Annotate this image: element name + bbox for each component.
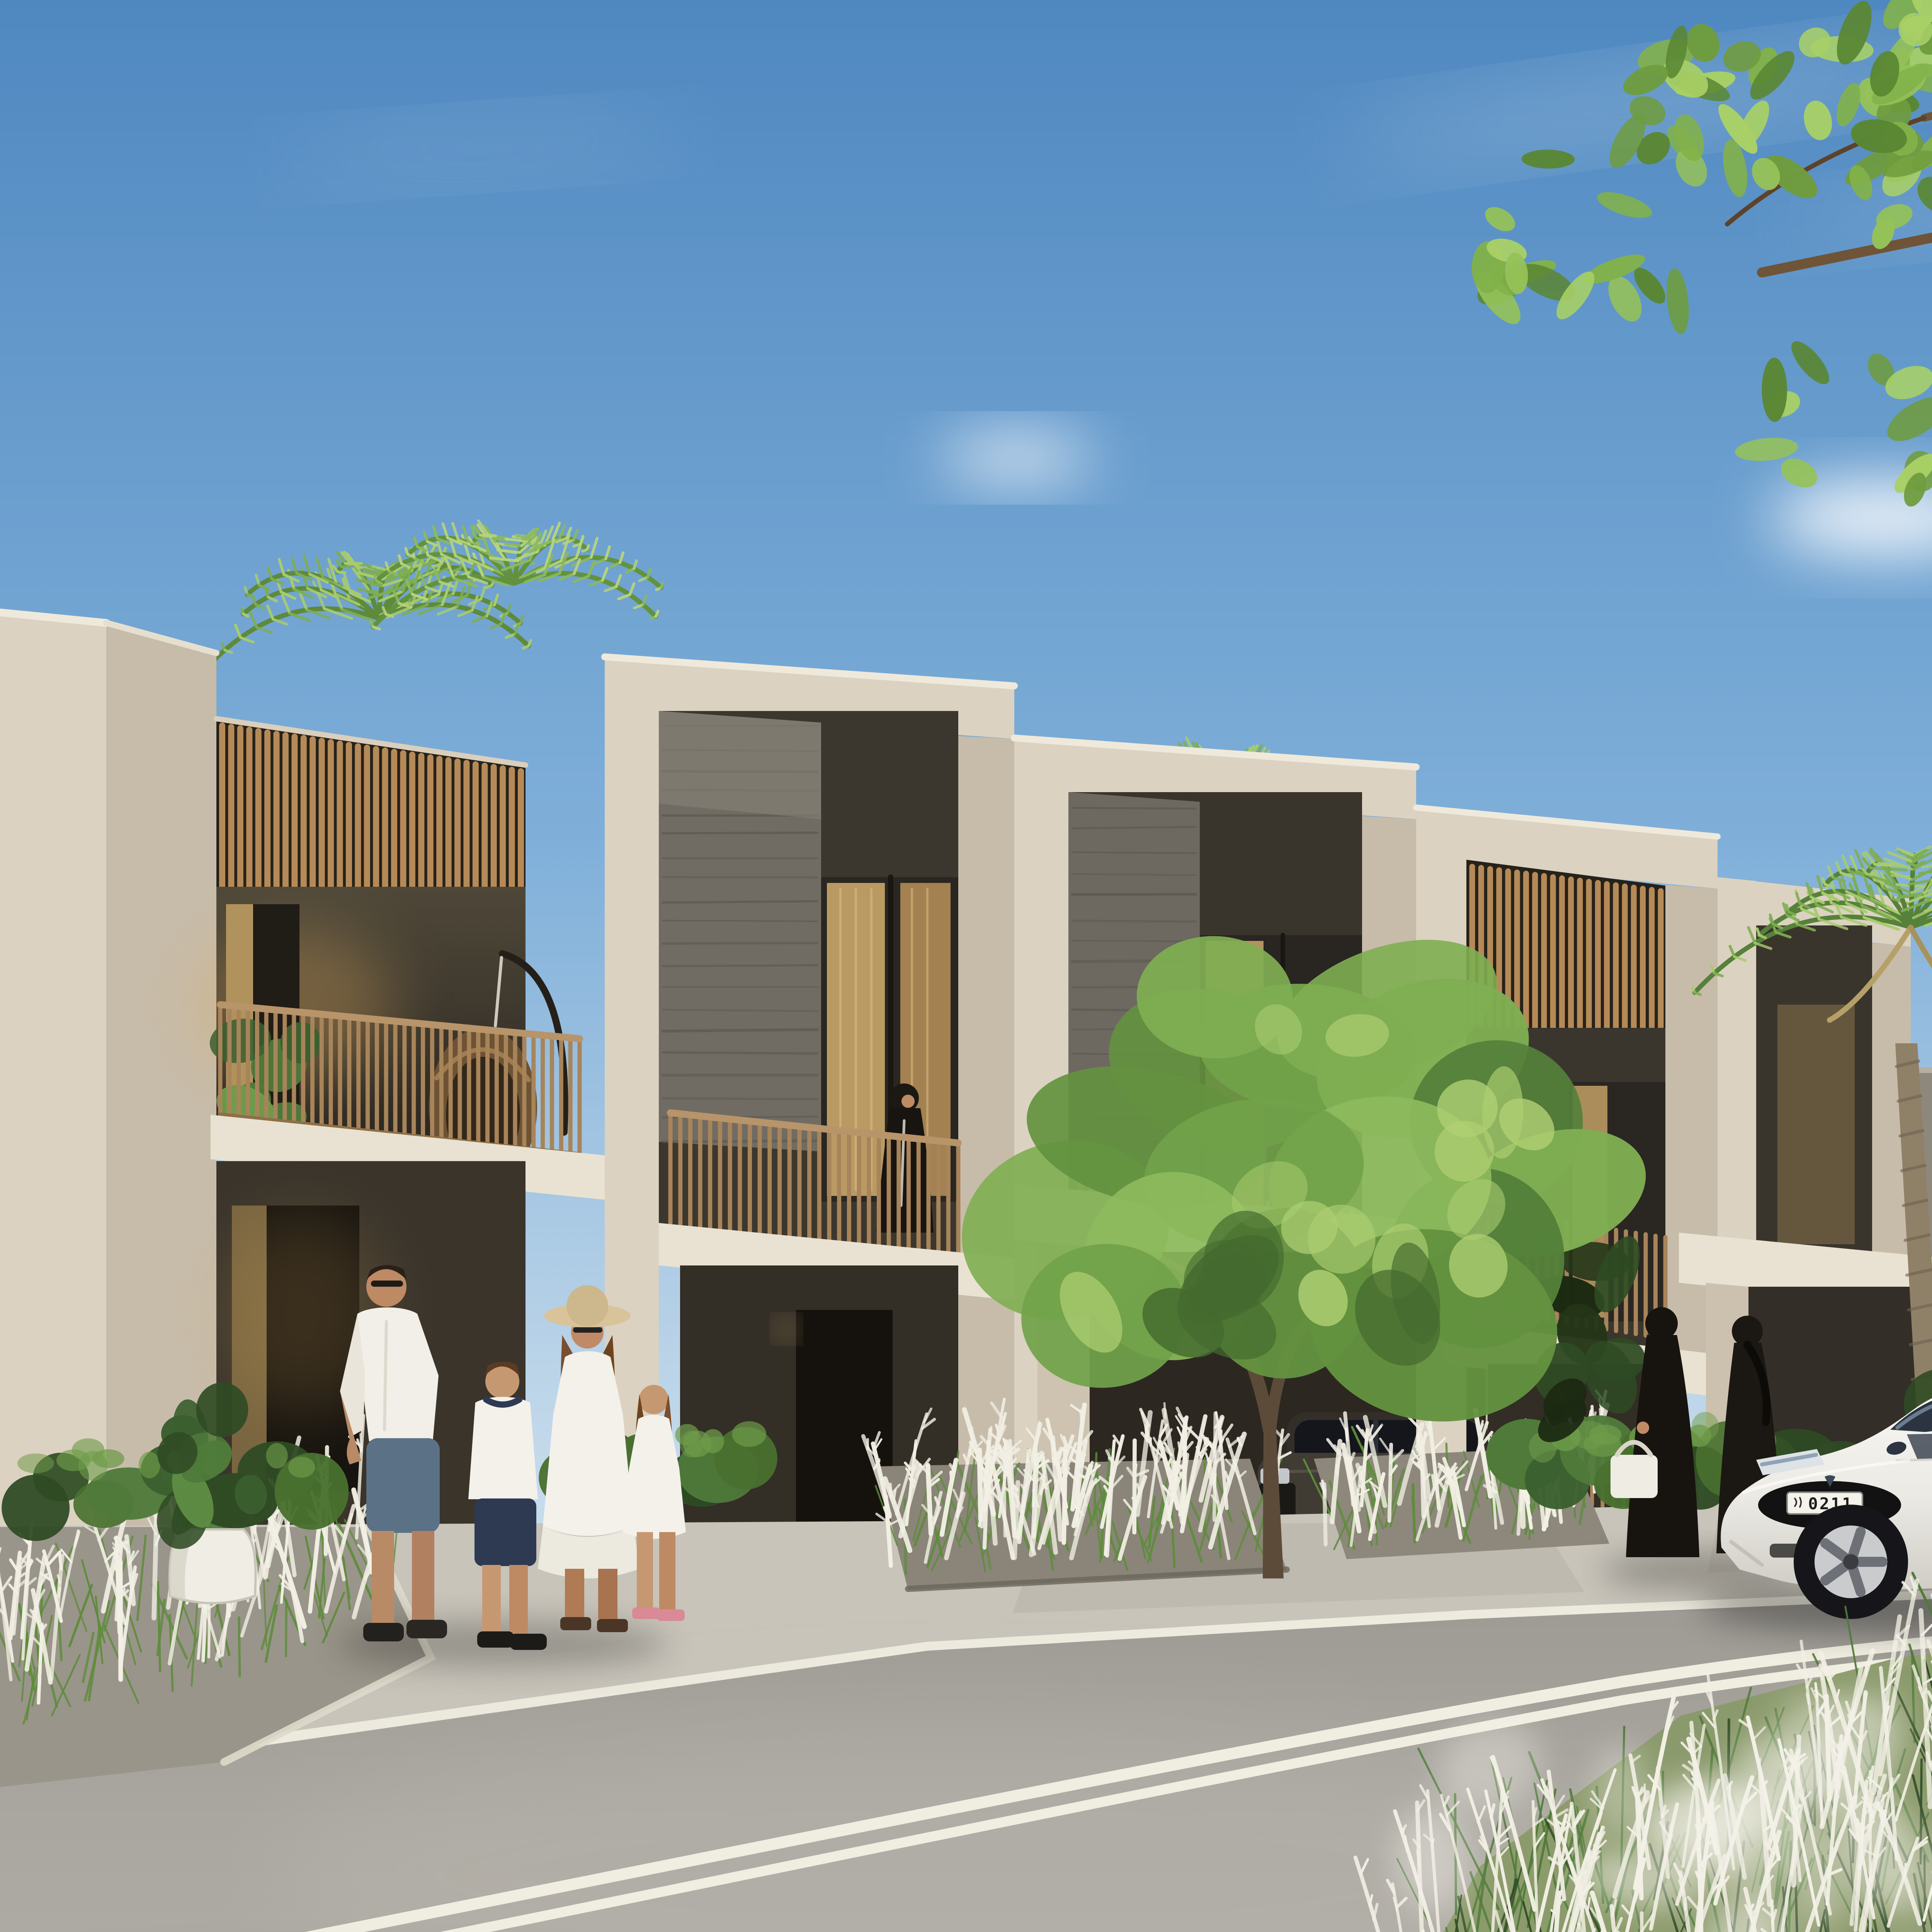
architectural-render: Sunny street view of a modern townhouse …: [0, 0, 1932, 1932]
scene-canvas: 0211: [0, 0, 1932, 1932]
